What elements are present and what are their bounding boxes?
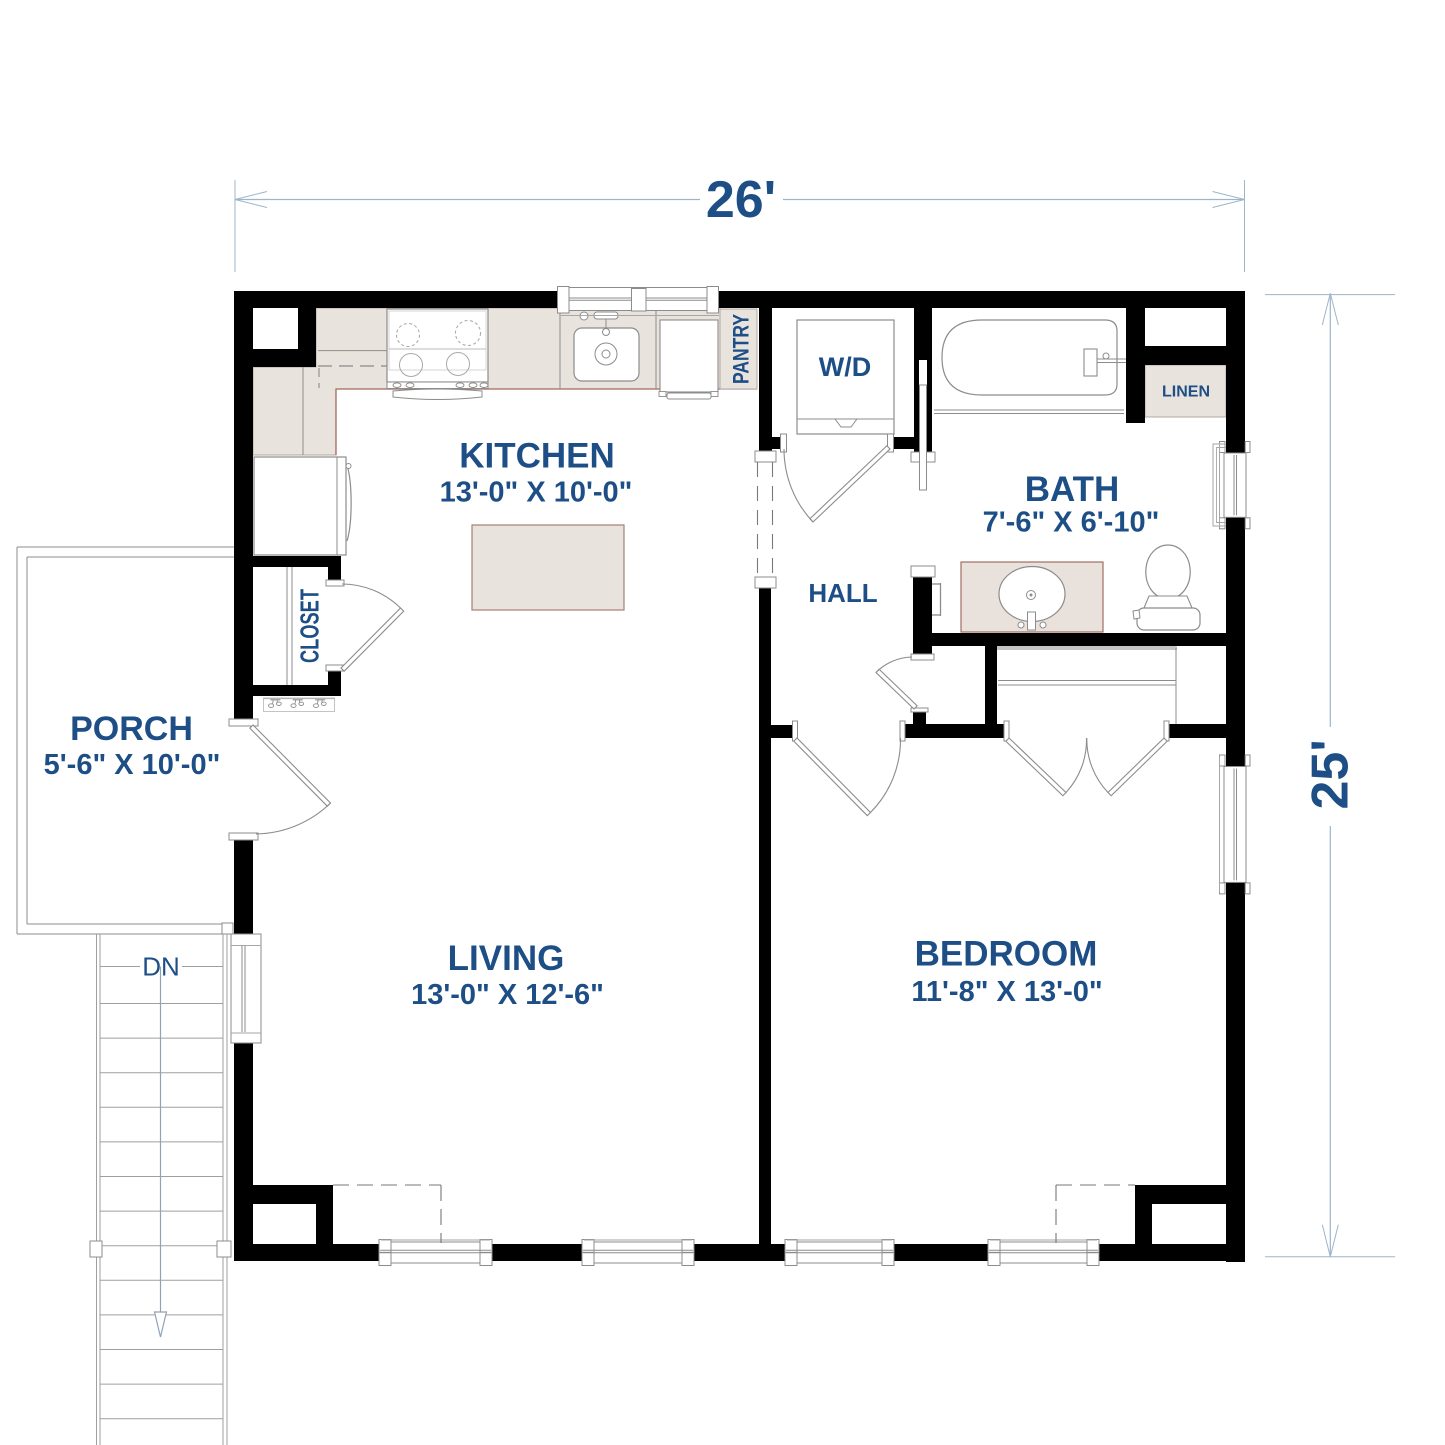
svg-text:PORCH: PORCH (70, 710, 193, 748)
svg-text:HALL: HALL (808, 578, 877, 608)
svg-text:PANTRY: PANTRY (729, 314, 754, 384)
svg-text:BATH: BATH (1025, 470, 1120, 509)
svg-text:7'-6" X 6'-10": 7'-6" X 6'-10" (983, 507, 1160, 539)
svg-text:26': 26' (706, 171, 776, 229)
svg-text:CLOSET: CLOSET (294, 589, 324, 663)
svg-text:11'-8" X 13'-0": 11'-8" X 13'-0" (911, 976, 1102, 1008)
svg-text:W/D: W/D (819, 352, 871, 382)
svg-text:LINEN: LINEN (1162, 384, 1210, 401)
svg-text:13'-0" X 10'-0": 13'-0" X 10'-0" (440, 477, 633, 509)
svg-text:BEDROOM: BEDROOM (915, 935, 1098, 974)
svg-text:13'-0" X 12'-6": 13'-0" X 12'-6" (411, 979, 604, 1011)
svg-text:LIVING: LIVING (448, 939, 565, 978)
svg-text:KITCHEN: KITCHEN (459, 437, 615, 476)
svg-text:5'-6" X 10'-0": 5'-6" X 10'-0" (44, 749, 221, 781)
svg-text:25': 25' (1301, 739, 1359, 809)
